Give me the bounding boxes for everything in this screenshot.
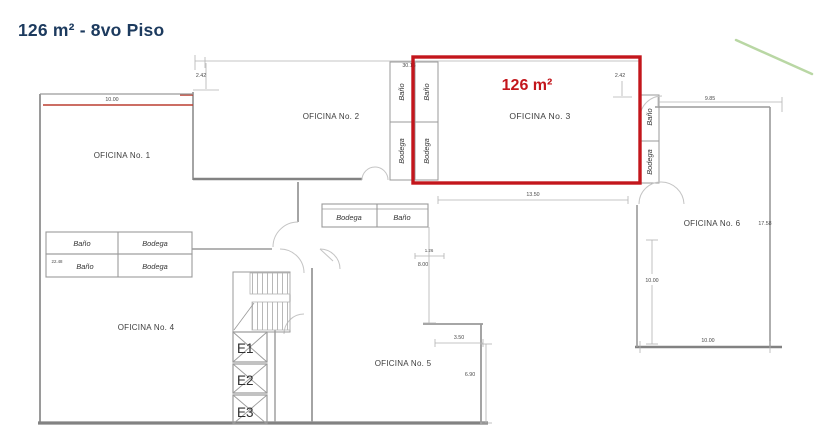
room-label-oficina-4: OFICINA No. 4 [118,323,175,332]
room-label-oficina-2: OFICINA No. 2 [303,112,360,121]
page-title: 126 m² - 8vo Piso [18,20,164,40]
dim-of6-left: 10.00 [645,278,658,284]
dim-of3-bottom: 13.50 [526,192,539,198]
staircase [233,272,290,332]
cell-bano-strip1: Baño [397,83,406,100]
dim-left-height: 22.48 [52,259,64,264]
room-label-oficina-1: OFICINA No. 1 [94,151,151,160]
dim-of6-height: 17.58 [758,221,771,227]
highlight-labels: 126 m² OFICINA No. 3 [502,77,571,121]
dim-of3-right: 2.42 [615,73,625,79]
elevator-e1: E1 [233,332,267,362]
green-annotation-line [736,40,812,74]
cell-bodega-mid: Bodega [336,213,361,222]
highlight-area-label: 126 m² [502,77,553,94]
dim-of6-bottom: 10.00 [701,338,714,344]
floorplan-drawing: 126 m² - 8vo Piso [0,0,828,433]
cell-bodega-right: Bodega [645,149,654,174]
dim-of5-top: 3.50 [454,335,464,341]
cell-bano-row2: Baño [76,262,93,271]
dim-of1-top: 10.00 [105,97,118,103]
cell-bano-right: Baño [645,108,654,125]
dim-of5-right: 6.90 [465,372,475,378]
room-label-oficina-3: OFICINA No. 3 [509,111,570,121]
elevator-e2: E2 [233,364,267,393]
dim-of6-top: 9.85 [705,96,715,102]
cell-bodega-strip2: Bodega [422,138,431,163]
dim-mid-height: 8.00 [418,262,428,268]
stair-flight-upper [250,273,290,294]
elevator-shafts: E1 E2 E3 [233,332,267,424]
dim-mid-small: 1.26 [425,248,434,253]
dim-of2-left: 2.42 [196,73,206,79]
stair-flight-lower [252,302,290,330]
cell-bano-row1: Baño [73,239,90,248]
elevator-e3: E3 [233,395,267,424]
cell-bodega-row2: Bodega [142,262,167,271]
elevator-label-e2: E2 [237,373,254,388]
cell-bano-strip2: Baño [422,83,431,100]
door-arcs [273,96,684,334]
dimension-lines [193,63,782,423]
elevator-label-e3: E3 [237,405,254,420]
room-label-oficina-5: OFICINA No. 5 [375,359,432,368]
floorplan-page: 126 m² - 8vo Piso [0,0,828,433]
cell-bodega-row1: Bodega [142,239,167,248]
cell-bodega-strip1: Bodega [397,138,406,163]
elevator-label-e1: E1 [237,341,254,356]
room-label-oficina-6: OFICINA No. 6 [684,219,741,228]
cell-bano-mid: Baño [393,213,410,222]
